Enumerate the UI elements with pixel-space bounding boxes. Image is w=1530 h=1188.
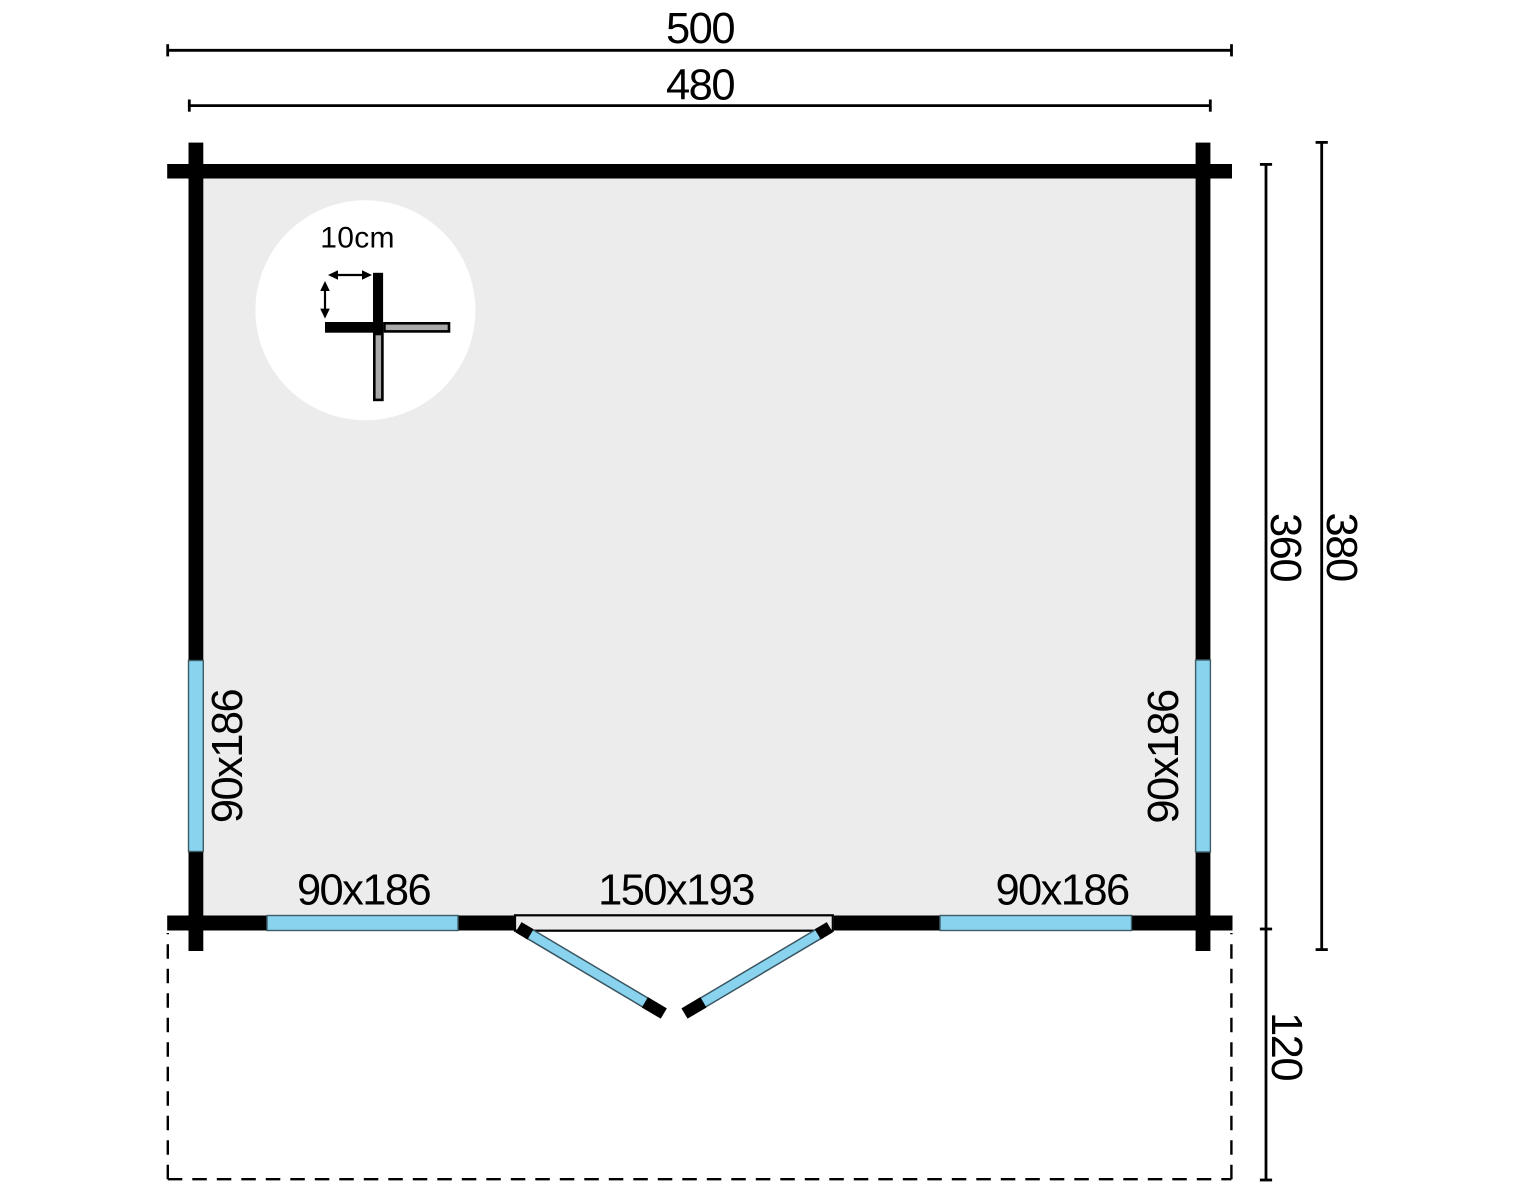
svg-text:500: 500 (666, 5, 734, 53)
svg-text:90x186: 90x186 (1140, 690, 1188, 824)
svg-text:90x186: 90x186 (297, 867, 431, 915)
svg-text:380: 380 (1317, 513, 1365, 581)
svg-text:480: 480 (666, 62, 734, 110)
svg-text:90x186: 90x186 (204, 690, 252, 824)
svg-text:10cm: 10cm (320, 221, 395, 254)
svg-text:360: 360 (1261, 513, 1309, 581)
svg-text:90x186: 90x186 (995, 867, 1129, 915)
svg-text:150x193: 150x193 (598, 867, 754, 915)
svg-text:120: 120 (1262, 1012, 1310, 1080)
